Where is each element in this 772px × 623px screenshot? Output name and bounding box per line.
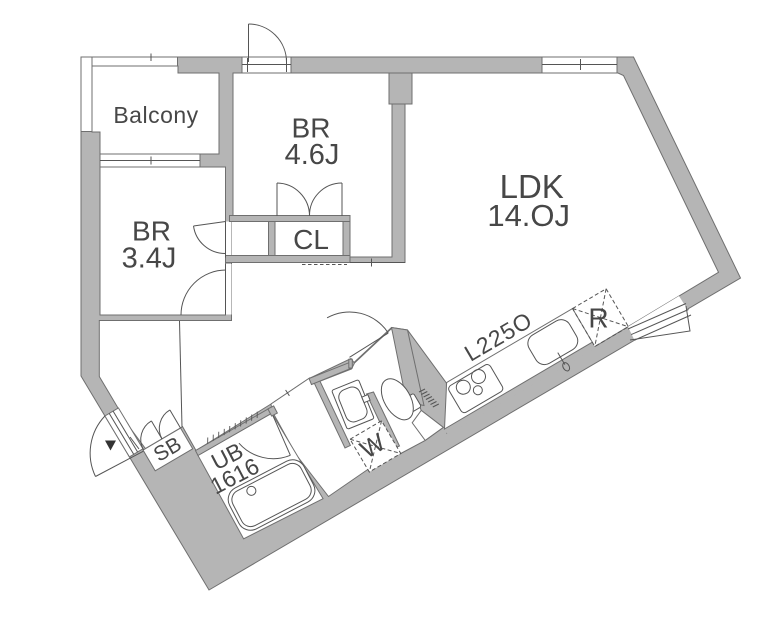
svg-text:14.OJ: 14.OJ [487,198,570,233]
svg-text:CL: CL [293,224,329,255]
svg-text:4.6J: 4.6J [285,139,340,171]
svg-text:R: R [588,303,608,334]
svg-text:3.4J: 3.4J [122,243,177,275]
svg-text:Balcony: Balcony [113,102,198,128]
